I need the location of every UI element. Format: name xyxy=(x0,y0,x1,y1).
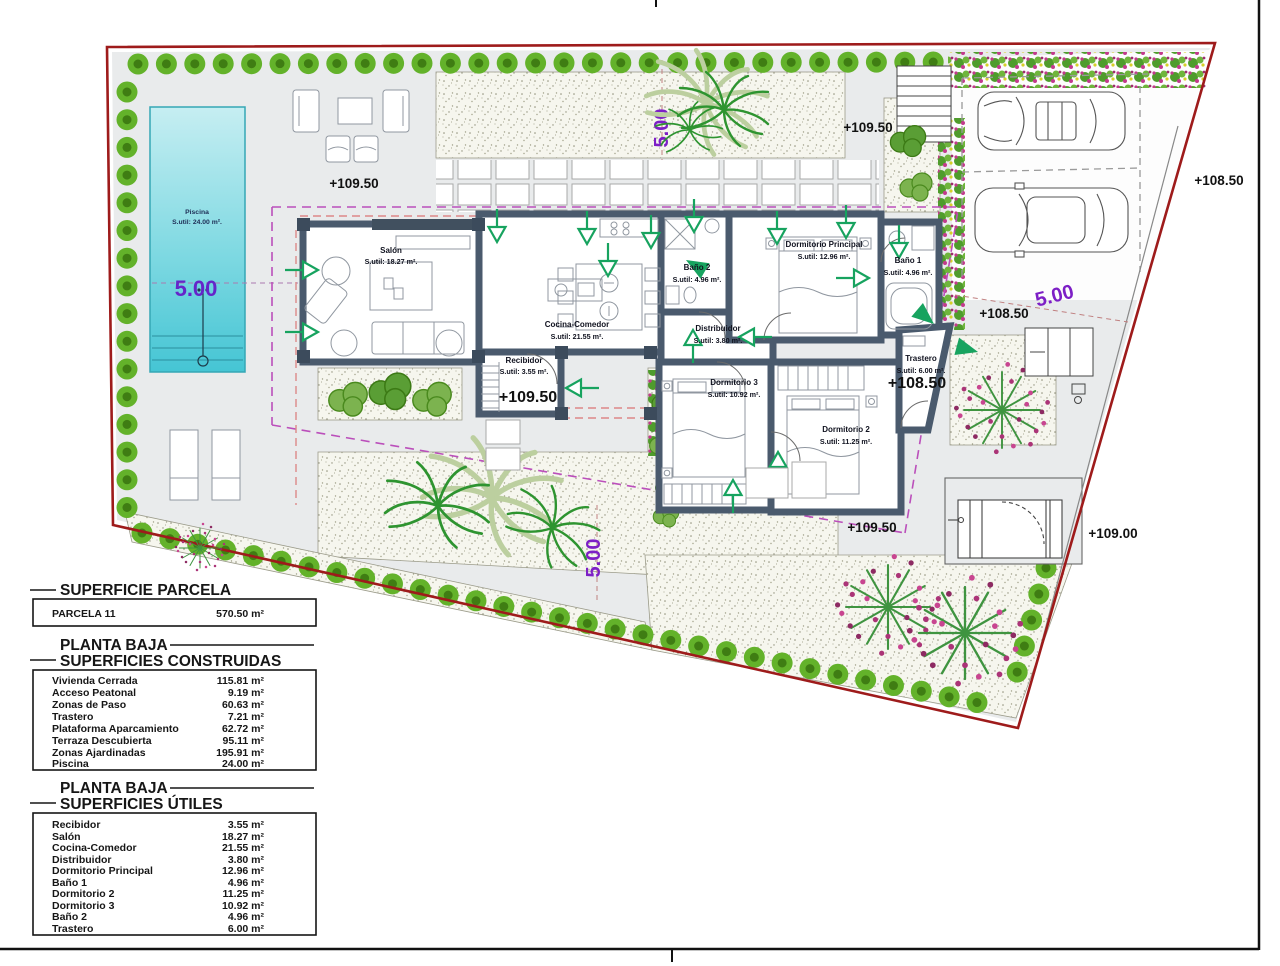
svg-text:Baño 1: Baño 1 xyxy=(895,256,922,265)
svg-text:+109.50: +109.50 xyxy=(499,389,557,406)
svg-text:Recibidor: Recibidor xyxy=(52,819,100,831)
svg-text:Trastero: Trastero xyxy=(52,711,93,723)
svg-text:3.55 m²: 3.55 m² xyxy=(228,819,265,831)
svg-text:+109.50: +109.50 xyxy=(847,520,896,535)
svg-text:S.util: 3.55 m².: S.util: 3.55 m². xyxy=(500,367,549,376)
lintel xyxy=(372,219,472,230)
svg-text:95.11 m²: 95.11 m² xyxy=(223,735,265,747)
svg-text:Cocina-Comedor: Cocina-Comedor xyxy=(52,842,137,854)
svg-text:570.50 m²: 570.50 m² xyxy=(216,608,264,620)
utility-room xyxy=(945,478,1082,564)
svg-text:Baño 2: Baño 2 xyxy=(684,263,711,272)
svg-text:7.21 m²: 7.21 m² xyxy=(228,711,265,723)
svg-text:Cocina-Comedor: Cocina-Comedor xyxy=(545,320,609,329)
site-plan-drawing: Piscina S.util: 24.00 m². 5.00 xyxy=(0,0,1280,966)
svg-text:+108.50: +108.50 xyxy=(1194,173,1243,188)
svg-text:Recibidor: Recibidor xyxy=(506,356,543,365)
svg-text:Plataforma Aparcamiento: Plataforma Aparcamiento xyxy=(52,723,179,735)
svg-text:PARCELA 11: PARCELA 11 xyxy=(52,608,116,620)
svg-text:S.util: 6.00 m².: S.util: 6.00 m². xyxy=(897,366,946,375)
svg-text:Vivienda Cerrada: Vivienda Cerrada xyxy=(52,675,138,687)
svg-text:11.25 m²: 11.25 m² xyxy=(223,888,265,900)
svg-text:Acceso Peatonal: Acceso Peatonal xyxy=(52,687,136,699)
car-icon xyxy=(978,92,1125,150)
pool-area: S.util: 24.00 m². xyxy=(172,219,222,226)
svg-text:Salón: Salón xyxy=(380,246,402,255)
svg-text:Terraza Descubierta: Terraza Descubierta xyxy=(52,735,152,747)
svg-text:Dormitorio 3: Dormitorio 3 xyxy=(710,378,758,387)
svg-text:S.util: 21.55 m².: S.util: 21.55 m². xyxy=(551,332,604,341)
svg-text:62.72 m²: 62.72 m² xyxy=(222,723,265,735)
svg-text:PLANTA BAJA: PLANTA BAJA xyxy=(60,780,168,797)
svg-text:21.55 m²: 21.55 m² xyxy=(222,842,265,854)
pool-dim: 5.00 xyxy=(175,276,218,301)
svg-text:Dormitorio Principal: Dormitorio Principal xyxy=(52,865,153,877)
svg-text:SUPERFICIES CONSTRUIDAS: SUPERFICIES CONSTRUIDAS xyxy=(60,653,281,670)
svg-text:Piscina: Piscina xyxy=(52,758,89,770)
svg-text:12.96 m²: 12.96 m² xyxy=(222,865,265,877)
svg-text:24.00 m²: 24.00 m² xyxy=(222,758,265,770)
svg-text:Zonas de Paso: Zonas de Paso xyxy=(52,699,126,711)
svg-text:S.util: 18.27 m².: S.util: 18.27 m². xyxy=(365,257,418,266)
svg-text:Dormitorio Principal: Dormitorio Principal xyxy=(786,240,863,249)
svg-text:Dormitorio 2: Dormitorio 2 xyxy=(822,425,870,434)
svg-text:S.util: 11.25 m².: S.util: 11.25 m². xyxy=(820,437,872,446)
svg-text:+109.00: +109.00 xyxy=(1088,526,1137,541)
svg-text:SUPERFICIE PARCELA: SUPERFICIE PARCELA xyxy=(60,582,231,599)
svg-text:+108.50: +108.50 xyxy=(888,375,946,392)
svg-text:Distribuidor: Distribuidor xyxy=(695,324,740,333)
svg-text:S.util: 4.96 m².: S.util: 4.96 m². xyxy=(673,275,722,284)
stepping-stones xyxy=(436,160,879,212)
svg-text:PLANTA BAJA: PLANTA BAJA xyxy=(60,637,168,654)
table-superficies-utiles: PLANTA BAJA SUPERFICIES ÚTILES Recibidor… xyxy=(30,780,316,935)
pool-name: Piscina xyxy=(185,209,209,216)
svg-text:+109.50: +109.50 xyxy=(329,176,378,191)
svg-text:4.96 m²: 4.96 m² xyxy=(228,911,265,923)
svg-text:115.81 m²: 115.81 m² xyxy=(217,675,265,687)
svg-text:Baño 2: Baño 2 xyxy=(52,911,87,923)
car-icon xyxy=(975,183,1128,257)
svg-text:Trastero: Trastero xyxy=(52,923,93,935)
svg-text:60.63 m²: 60.63 m² xyxy=(222,699,265,711)
svg-text:+108.50: +108.50 xyxy=(979,306,1028,321)
table-superficies-construidas: PLANTA BAJA SUPERFICIES CONSTRUIDAS Vivi… xyxy=(30,637,316,770)
svg-text:S.util: 4.96 m².: S.util: 4.96 m². xyxy=(884,268,933,277)
svg-text:S.util: 12.96 m².: S.util: 12.96 m². xyxy=(798,252,851,261)
svg-text:S.util: 3.80 m².: S.util: 3.80 m². xyxy=(694,336,743,345)
svg-text:6.00 m²: 6.00 m² xyxy=(228,923,265,935)
svg-text:9.19 m²: 9.19 m² xyxy=(228,687,265,699)
area-tables: SUPERFICIE PARCELA PARCELA 11 570.50 m² … xyxy=(30,582,316,935)
room-salon xyxy=(303,224,479,362)
svg-text:+109.50: +109.50 xyxy=(843,120,892,135)
svg-text:Trastero: Trastero xyxy=(905,354,937,363)
svg-text:S.util: 10.92 m².: S.util: 10.92 m². xyxy=(708,390,761,399)
table-superficie-parcela: SUPERFICIE PARCELA PARCELA 11 570.50 m² xyxy=(30,582,316,626)
svg-text:Dormitorio 2: Dormitorio 2 xyxy=(52,888,115,900)
svg-text:SUPERFICIES ÚTILES: SUPERFICIES ÚTILES xyxy=(60,795,223,813)
